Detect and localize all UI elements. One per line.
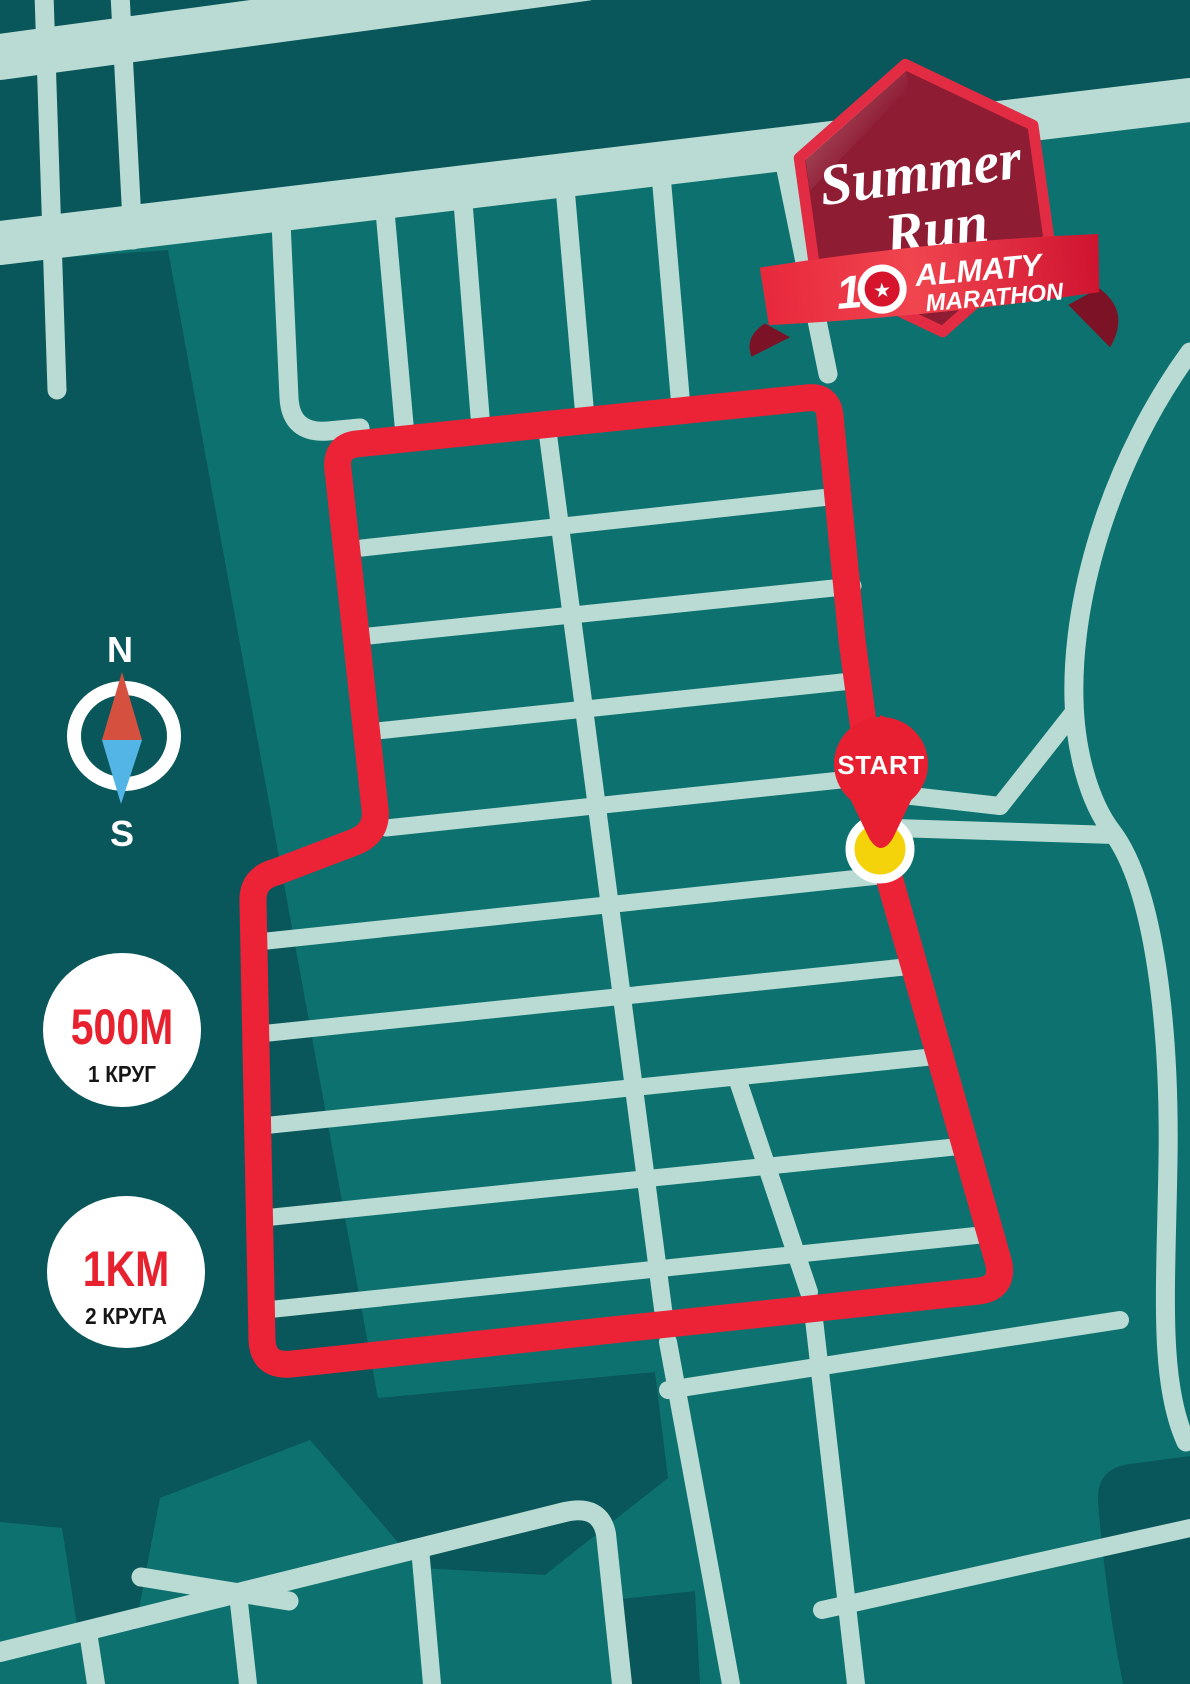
badge-laps-1km: 2 КРУГА [85,1303,167,1329]
anniversary-star-icon: ★ [872,279,892,302]
compass-south-label: S [110,813,134,854]
badge-laps-500m: 1 КРУГ [88,1061,156,1087]
distance-badge-500m: 500M 1 КРУГ [43,953,201,1107]
street-bl-v1 [88,1632,96,1684]
compass-north-label: N [107,629,133,670]
map-canvas: START N S 500M 1 КРУГ 1KM 2 КРУГА Summer… [0,0,1190,1684]
street-bl-v2 [238,1594,248,1684]
badge-distance-500m: 500M [71,999,174,1055]
street-junction-chord [895,828,1114,835]
start-pin-label: START [837,750,924,780]
street-v-left-2 [120,0,133,240]
badge-distance-1km: 1KM [83,1241,170,1297]
street-v-left-1 [44,0,57,390]
race-map-poster: START N S 500M 1 КРУГ 1KM 2 КРУГА Summer… [0,0,1190,1684]
distance-badge-1km: 1KM 2 КРУГА [47,1196,205,1348]
street-bl-v3 [420,1548,432,1684]
